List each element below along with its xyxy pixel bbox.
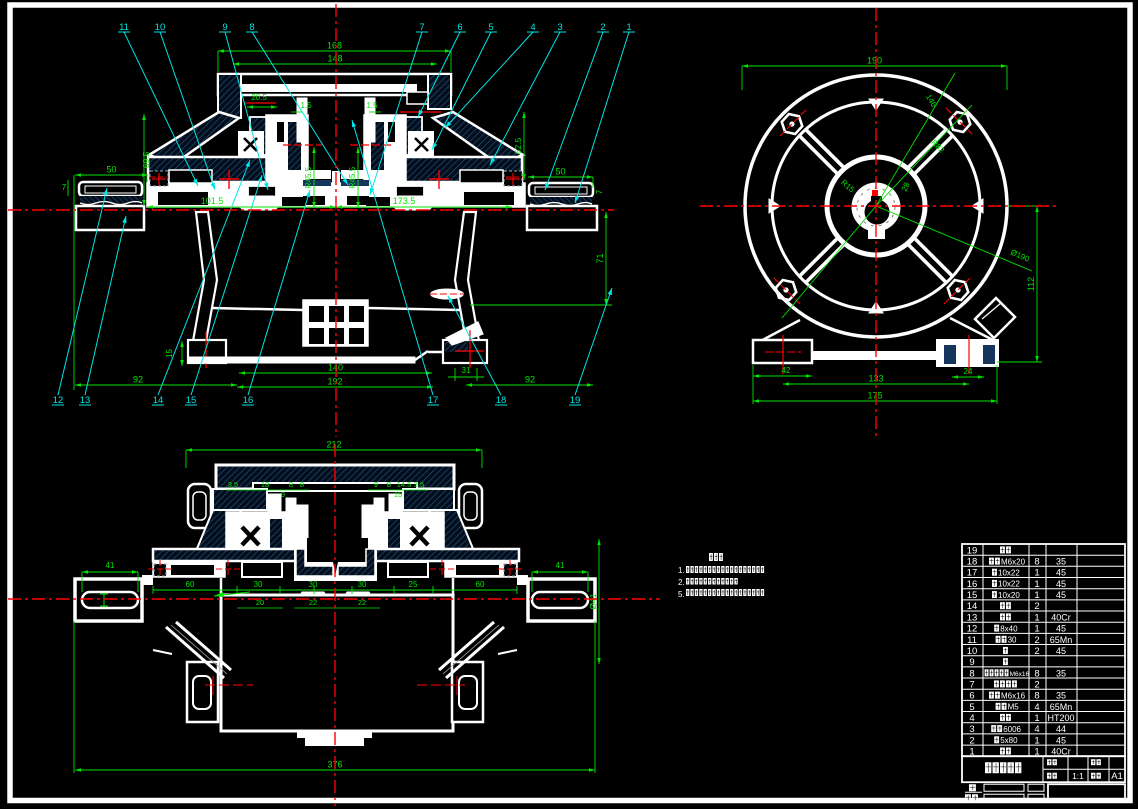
svg-text:5.: 5. (678, 590, 685, 599)
svg-text:19: 19 (967, 545, 978, 556)
svg-text:19: 19 (570, 395, 581, 406)
svg-text:6: 6 (969, 691, 974, 702)
svg-text:212: 212 (326, 440, 341, 450)
svg-text:12: 12 (967, 624, 978, 635)
svg-text:31: 31 (462, 366, 471, 375)
svg-text:1: 1 (1034, 713, 1039, 724)
svg-text:42: 42 (782, 366, 791, 375)
svg-text:2: 2 (969, 735, 974, 746)
svg-text:M6x20: M6x20 (1001, 557, 1026, 566)
svg-text:16: 16 (243, 395, 254, 406)
svg-text:30: 30 (309, 580, 318, 589)
svg-text:45: 45 (1056, 590, 1066, 600)
svg-text:148: 148 (327, 54, 342, 64)
svg-text:11: 11 (967, 635, 977, 646)
svg-text:40Cr: 40Cr (1051, 612, 1071, 622)
svg-text:18: 18 (496, 395, 507, 406)
svg-text:1: 1 (1034, 735, 1039, 746)
svg-text:M6x16: M6x16 (1010, 671, 1030, 678)
svg-text:192: 192 (327, 377, 342, 387)
svg-text:1: 1 (1034, 624, 1039, 635)
svg-text:5: 5 (969, 702, 974, 713)
svg-text:4: 4 (969, 713, 974, 724)
svg-text:45: 45 (1056, 646, 1066, 656)
svg-text:10: 10 (155, 22, 166, 33)
svg-text:15: 15 (186, 395, 197, 406)
svg-text:7: 7 (419, 22, 424, 33)
svg-text:8: 8 (1034, 691, 1039, 702)
svg-text:1: 1 (626, 22, 631, 33)
svg-text:69.5: 69.5 (141, 151, 151, 168)
svg-text:8: 8 (969, 668, 974, 679)
svg-text:41: 41 (106, 561, 115, 570)
svg-text:20.5: 20.5 (251, 93, 267, 102)
svg-text:4: 4 (530, 22, 535, 33)
svg-text:112: 112 (1026, 277, 1036, 291)
svg-text:A1: A1 (1111, 771, 1123, 782)
svg-text:35: 35 (1056, 691, 1066, 701)
svg-text:4: 4 (1034, 724, 1039, 735)
svg-text:17: 17 (967, 568, 978, 579)
svg-text:190: 190 (867, 56, 882, 66)
svg-text:M5: M5 (1008, 703, 1020, 712)
svg-text:30: 30 (254, 580, 263, 589)
svg-text:24: 24 (964, 367, 973, 376)
svg-text:M6x16: M6x16 (1001, 691, 1026, 700)
svg-text:6006: 6006 (1003, 725, 1021, 734)
svg-text:10x22: 10x22 (998, 580, 1020, 589)
svg-text:1: 1 (1034, 590, 1039, 601)
svg-text:60: 60 (186, 580, 195, 589)
svg-text:45: 45 (1056, 579, 1066, 589)
svg-text:14: 14 (967, 601, 978, 612)
svg-text:8: 8 (1034, 557, 1039, 568)
svg-text:3.5: 3.5 (228, 480, 238, 489)
svg-text:14: 14 (153, 395, 164, 406)
svg-text:2: 2 (1034, 601, 1039, 612)
svg-text:3: 3 (557, 22, 562, 33)
svg-text:30: 30 (358, 580, 367, 589)
svg-text:10x22: 10x22 (998, 569, 1020, 578)
svg-text:35: 35 (1056, 557, 1066, 567)
svg-text:168: 168 (327, 41, 342, 51)
svg-text:3: 3 (969, 724, 974, 735)
svg-text:15: 15 (394, 490, 402, 499)
svg-text:14.5: 14.5 (397, 480, 412, 489)
svg-text:50: 50 (106, 165, 116, 175)
svg-text:7: 7 (62, 183, 67, 192)
svg-text:101.5: 101.5 (201, 196, 224, 206)
svg-text:4: 4 (1034, 702, 1039, 713)
svg-text:18: 18 (261, 480, 269, 489)
svg-text:9: 9 (969, 657, 974, 668)
svg-text:62.5: 62.5 (513, 137, 523, 154)
svg-text:6: 6 (457, 22, 462, 33)
svg-text:9: 9 (222, 22, 227, 33)
svg-text:175: 175 (867, 391, 882, 401)
svg-text:10x20: 10x20 (998, 591, 1020, 600)
svg-text:R45.5: R45.5 (348, 166, 357, 188)
svg-text:11: 11 (119, 22, 129, 33)
svg-text:92: 92 (133, 375, 143, 385)
svg-text:8: 8 (289, 480, 293, 489)
svg-text:30: 30 (1008, 636, 1017, 645)
svg-text:50: 50 (555, 167, 565, 177)
svg-text:2: 2 (1034, 635, 1039, 646)
svg-text:HT200: HT200 (1047, 713, 1074, 723)
svg-text:1.: 1. (678, 566, 685, 575)
svg-text:35: 35 (1056, 668, 1066, 678)
svg-text:1.5: 1.5 (366, 101, 378, 110)
svg-text:5x80: 5x80 (1000, 736, 1018, 745)
svg-text:65Mn: 65Mn (1050, 635, 1073, 645)
svg-text:8: 8 (1034, 668, 1039, 679)
svg-text:Ø41: Ø41 (588, 593, 598, 609)
svg-text:2.: 2. (678, 578, 685, 587)
svg-text:2: 2 (1034, 679, 1039, 690)
svg-text:1.5: 1.5 (300, 101, 312, 110)
svg-text:18: 18 (967, 557, 978, 568)
svg-text:9: 9 (281, 490, 285, 499)
svg-text:16: 16 (967, 579, 978, 590)
svg-text:40Cr: 40Cr (1051, 747, 1071, 757)
svg-text:8: 8 (249, 22, 254, 33)
svg-text:71: 71 (595, 253, 605, 263)
svg-text:8: 8 (387, 480, 391, 489)
svg-text:1:1: 1:1 (1072, 771, 1084, 781)
svg-text:1: 1 (1034, 568, 1039, 579)
svg-text:10: 10 (967, 646, 978, 657)
svg-text:13: 13 (967, 612, 978, 623)
svg-text:15: 15 (967, 590, 978, 601)
svg-text:3.5: 3.5 (414, 480, 424, 489)
svg-text:R45.5: R45.5 (304, 166, 313, 188)
svg-text:2: 2 (600, 22, 605, 33)
svg-text:45: 45 (1056, 624, 1066, 634)
svg-text:7: 7 (969, 679, 974, 690)
svg-text:8: 8 (300, 480, 304, 489)
svg-text:1: 1 (1034, 579, 1039, 590)
svg-text:41: 41 (556, 561, 565, 570)
svg-text:13: 13 (80, 395, 91, 406)
svg-text:12: 12 (53, 395, 64, 406)
svg-text:65Mn: 65Mn (1050, 702, 1073, 712)
svg-text:44: 44 (1056, 724, 1066, 734)
svg-text:45: 45 (1056, 568, 1066, 578)
svg-text:45: 45 (1056, 735, 1066, 745)
svg-text:173.5: 173.5 (393, 196, 416, 206)
svg-text:5: 5 (488, 22, 493, 33)
svg-text:60: 60 (476, 580, 485, 589)
svg-text:8x40: 8x40 (1000, 624, 1018, 633)
svg-text:25: 25 (409, 580, 418, 589)
svg-text:17: 17 (428, 395, 439, 406)
svg-text:92: 92 (525, 375, 535, 385)
svg-text:9: 9 (374, 480, 378, 489)
svg-text:2: 2 (1034, 646, 1039, 657)
svg-text:1: 1 (1034, 612, 1039, 623)
svg-text:7: 7 (595, 189, 604, 194)
